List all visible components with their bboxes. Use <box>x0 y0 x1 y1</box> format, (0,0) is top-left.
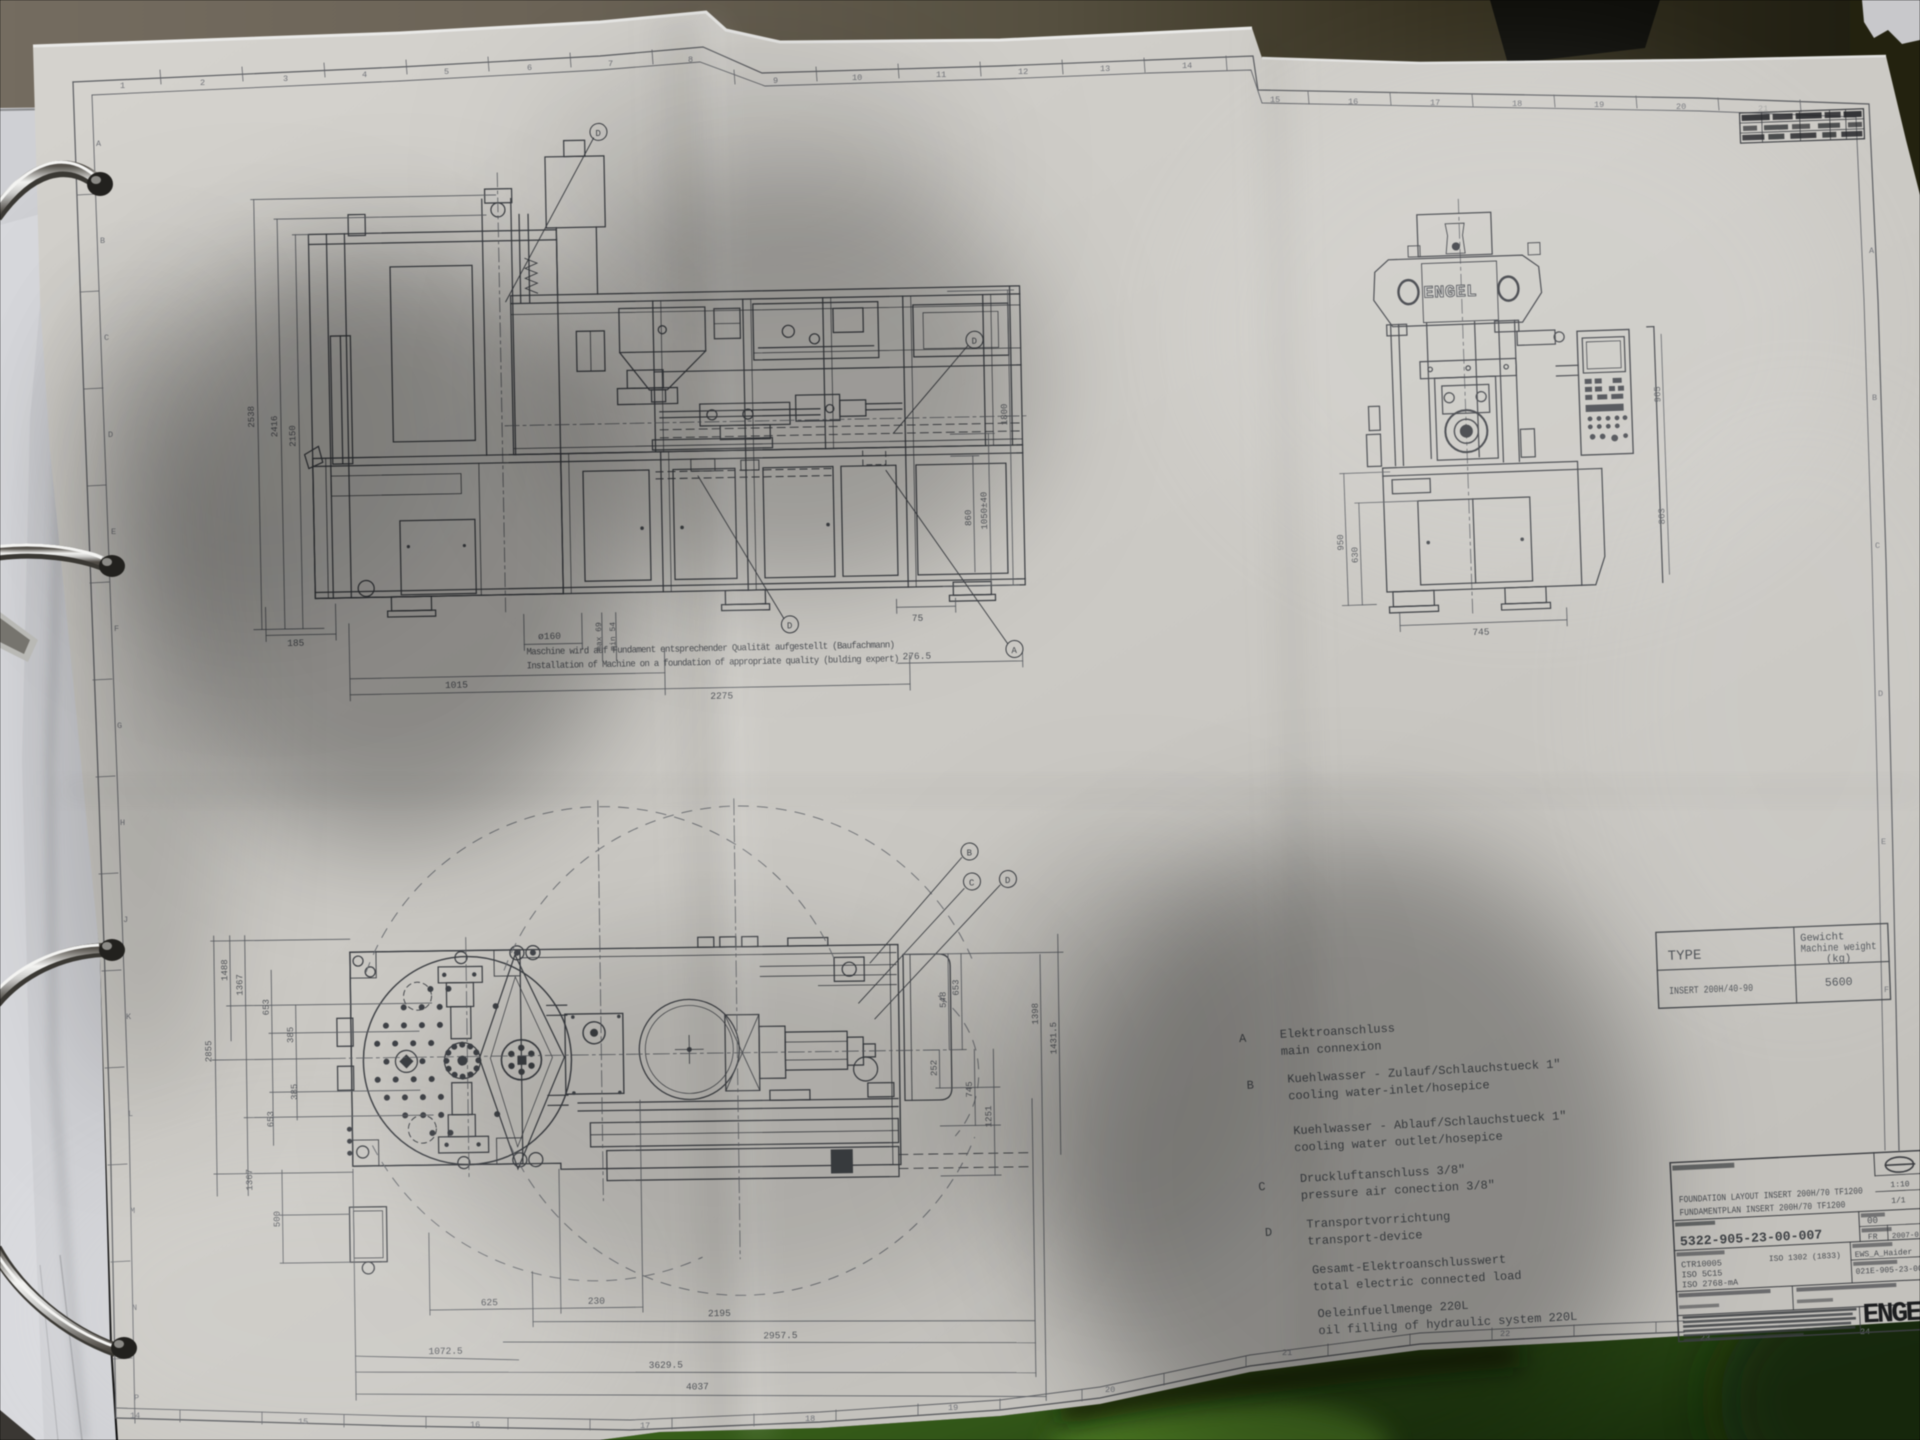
svg-text:11: 11 <box>936 70 946 80</box>
svg-text:5: 5 <box>444 67 449 77</box>
svg-text:20: 20 <box>1105 1385 1115 1395</box>
svg-text:3629.5: 3629.5 <box>649 1360 684 1371</box>
svg-text:385: 385 <box>286 1027 296 1043</box>
svg-text:14: 14 <box>1182 61 1192 71</box>
svg-text:D: D <box>1005 876 1011 886</box>
svg-text:A: A <box>1869 246 1875 256</box>
svg-text:C: C <box>969 878 975 888</box>
svg-text:7: 7 <box>608 59 613 69</box>
svg-text:00: 00 <box>1867 1216 1878 1227</box>
svg-text:745: 745 <box>1472 626 1490 638</box>
svg-text:653: 653 <box>266 1111 276 1127</box>
svg-text:19: 19 <box>948 1403 958 1413</box>
svg-text:653: 653 <box>951 979 961 995</box>
svg-text:276.5: 276.5 <box>902 651 931 663</box>
svg-text:F: F <box>1884 985 1889 995</box>
svg-text:12: 12 <box>1018 67 1028 77</box>
svg-text:2855: 2855 <box>204 1040 214 1062</box>
svg-text:B: B <box>967 848 973 858</box>
svg-text:1: 1 <box>120 81 125 91</box>
svg-text:D: D <box>787 621 793 631</box>
svg-text:L: L <box>128 1109 133 1119</box>
svg-text:6: 6 <box>527 63 532 73</box>
svg-text:3: 3 <box>283 74 288 84</box>
svg-text:2: 2 <box>200 78 205 88</box>
svg-text:75: 75 <box>912 613 924 624</box>
svg-text:4: 4 <box>362 70 367 80</box>
svg-text:1488: 1488 <box>220 959 230 981</box>
svg-text:1/1: 1/1 <box>1891 1196 1906 1206</box>
svg-text:B: B <box>1872 393 1877 403</box>
svg-text:A: A <box>1011 646 1017 656</box>
svg-text:18: 18 <box>805 1414 815 1424</box>
svg-text:A: A <box>96 139 102 149</box>
svg-text:B: B <box>100 236 105 246</box>
svg-text:653: 653 <box>262 999 272 1015</box>
svg-text:17: 17 <box>640 1421 650 1431</box>
svg-text:ENGEL: ENGEL <box>1862 1297 1920 1332</box>
svg-text:385: 385 <box>290 1084 300 1100</box>
svg-text:13: 13 <box>1100 64 1110 74</box>
svg-text:1:10: 1:10 <box>1890 1180 1910 1190</box>
svg-text:1367: 1367 <box>235 974 245 996</box>
